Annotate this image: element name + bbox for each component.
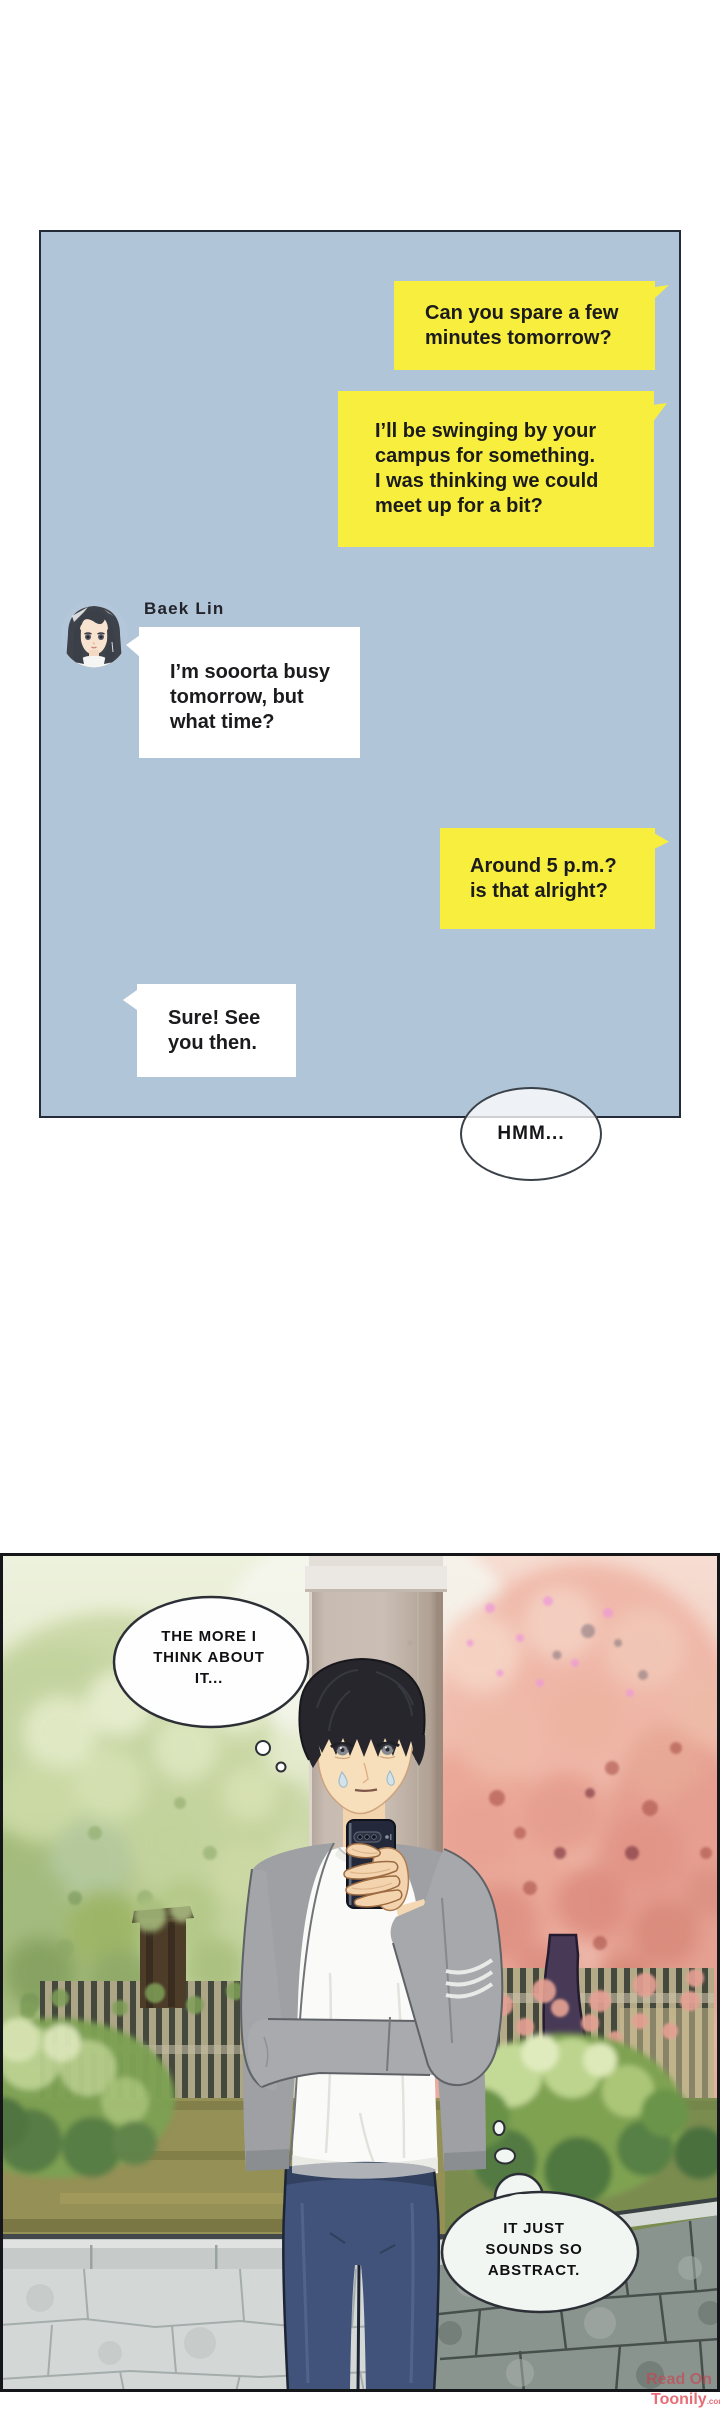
svg-text:ABSTRACT.: ABSTRACT. bbox=[488, 2262, 580, 2279]
svg-text:SOUNDS SO: SOUNDS SO bbox=[485, 2241, 582, 2258]
svg-text:IT...: IT... bbox=[195, 1670, 223, 1687]
svg-text:Read On: Read On bbox=[646, 2371, 712, 2388]
svg-text:THE MORE I: THE MORE I bbox=[161, 1628, 257, 1645]
svg-text:THINK ABOUT: THINK ABOUT bbox=[153, 1649, 265, 1666]
svg-text:IT JUST: IT JUST bbox=[503, 2220, 564, 2237]
